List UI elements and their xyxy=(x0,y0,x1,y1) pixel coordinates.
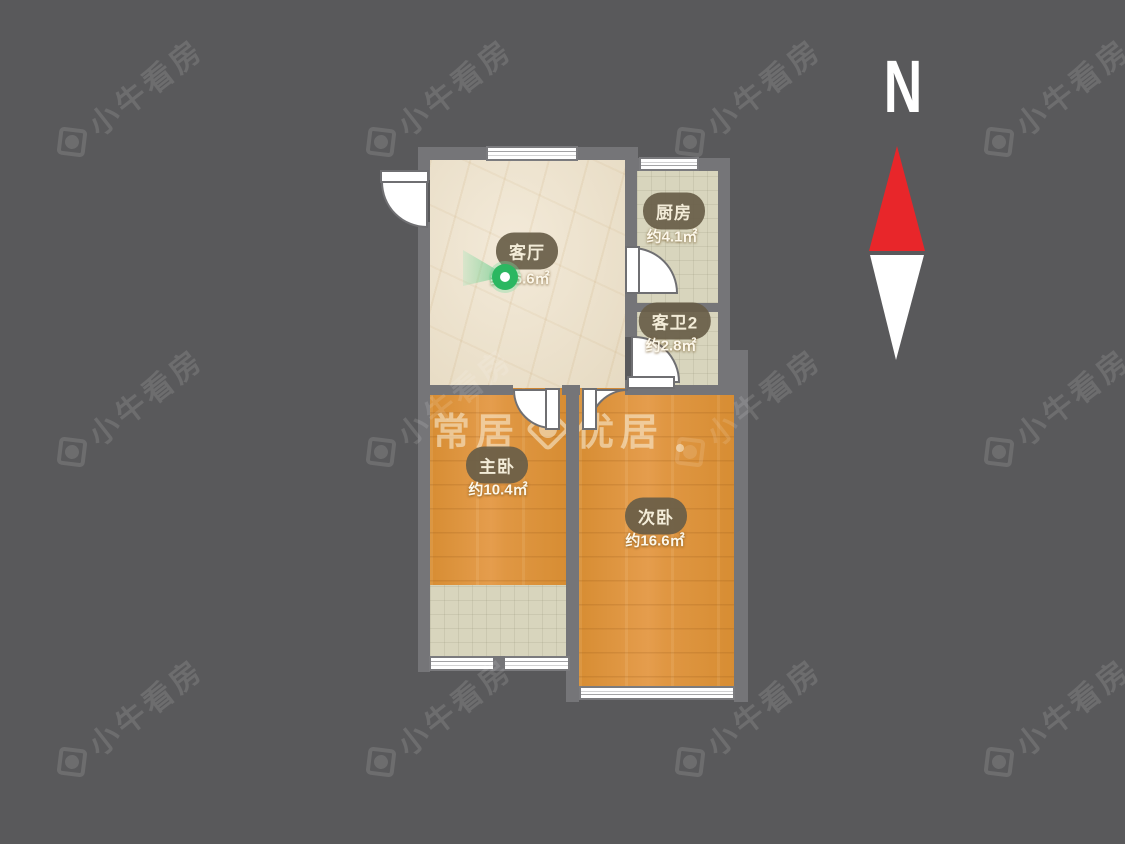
watermark-tile: 小牛看房 xyxy=(47,646,211,788)
compass-needle-icon xyxy=(862,140,932,368)
wall xyxy=(418,385,513,395)
changju-logo-icon xyxy=(525,406,570,451)
niuniu-logo-icon xyxy=(365,126,396,157)
niuniu-logo-icon xyxy=(674,746,705,777)
bathroom-area: 约2.8㎡ xyxy=(646,335,697,356)
watermark-tile: 小牛看房 xyxy=(974,26,1125,168)
kitchen-window xyxy=(639,157,699,171)
wall xyxy=(625,292,637,337)
niuniu-logo-icon xyxy=(56,436,87,467)
entrance-door-arc xyxy=(382,182,427,227)
watermark-text: 小牛看房 xyxy=(1004,336,1125,454)
watermark-dot-icon xyxy=(676,444,684,452)
wall xyxy=(734,382,748,702)
second-bedroom-window xyxy=(579,686,735,700)
niuniu-logo-icon xyxy=(56,126,87,157)
wall xyxy=(628,385,748,395)
kitchen-label: 厨房 xyxy=(643,193,705,230)
watermark-text: 小牛看房 xyxy=(77,26,211,144)
watermark-text: 小牛看房 xyxy=(386,26,520,144)
watermark-text: 小牛看房 xyxy=(695,26,829,144)
niuniu-logo-icon xyxy=(56,746,87,777)
niuniu-logo-icon xyxy=(674,126,705,157)
kitchen-area: 约4.1㎡ xyxy=(647,226,698,247)
watermark-tile: 小牛看房 xyxy=(665,26,829,168)
niuniu-logo-icon xyxy=(365,746,396,777)
niuniu-logo-icon xyxy=(983,436,1014,467)
watermark-tile: 小牛看房 xyxy=(47,26,211,168)
panorama-point-icon[interactable] xyxy=(492,264,518,290)
watermark-text: 小牛看房 xyxy=(1004,646,1125,764)
niuniu-logo-icon xyxy=(365,436,396,467)
balcony-floor xyxy=(430,585,566,657)
wall xyxy=(625,160,637,248)
wall xyxy=(418,222,430,672)
wall xyxy=(577,147,638,160)
master-bedroom-area: 约10.4㎡ xyxy=(468,479,527,500)
niuniu-logo-icon xyxy=(983,126,1014,157)
watermark-tile: 小牛看房 xyxy=(974,336,1125,478)
floor-plan-screenshot: 常居 优居 xyxy=(0,0,1125,844)
wall xyxy=(418,147,489,160)
balcony-window-mullion xyxy=(493,656,505,671)
niuniu-logo-icon xyxy=(983,746,1014,777)
center-watermark-text-right: 优居 xyxy=(576,401,664,456)
watermark-tile: 小牛看房 xyxy=(974,646,1125,788)
watermark-text: 小牛看房 xyxy=(77,646,211,764)
center-watermark: 常居 优居 xyxy=(432,401,684,456)
second-bedroom-area: 约16.6㎡ xyxy=(625,530,684,551)
watermark-tile: 小牛看房 xyxy=(47,336,211,478)
wall xyxy=(566,385,579,702)
watermark-text: 小牛看房 xyxy=(77,336,211,454)
compass-north-label: N xyxy=(878,50,928,124)
living-room-window xyxy=(486,146,578,161)
watermark-text: 小牛看房 xyxy=(1004,26,1125,144)
